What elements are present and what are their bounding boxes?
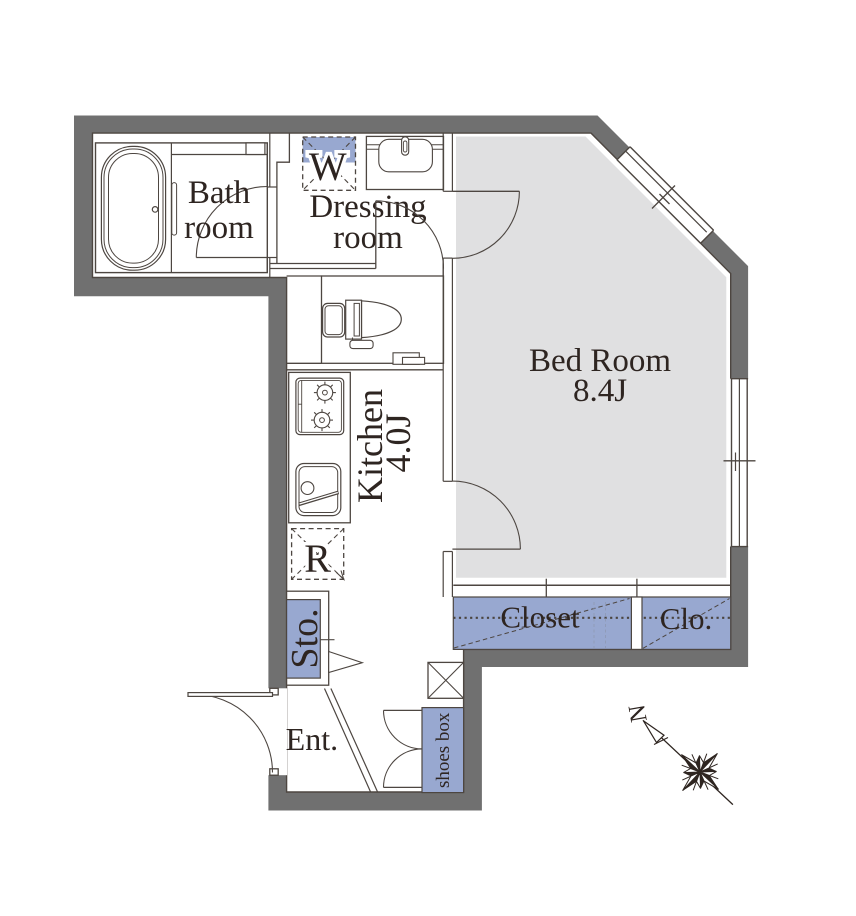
svg-text:Clo.: Clo.	[660, 601, 713, 636]
svg-text:8.4J: 8.4J	[573, 373, 627, 409]
svg-text:shoes box: shoes box	[433, 712, 454, 788]
svg-text:R: R	[304, 536, 331, 581]
svg-text:Bath: Bath	[188, 175, 251, 211]
svg-text:4.0J: 4.0J	[378, 413, 418, 472]
svg-text:Closet: Closet	[500, 600, 580, 635]
svg-text:Ent.: Ent.	[286, 721, 338, 757]
svg-text:Sto.: Sto.	[284, 608, 326, 668]
svg-text:room: room	[333, 220, 403, 256]
svg-text:room: room	[184, 210, 254, 246]
svg-text:W: W	[309, 144, 347, 189]
